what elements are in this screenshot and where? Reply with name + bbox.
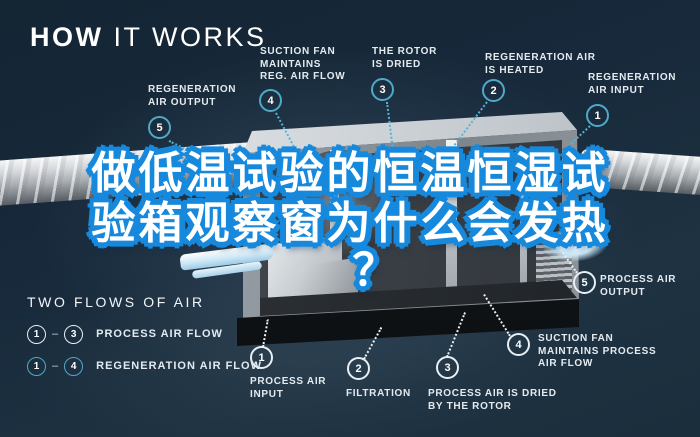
legend-label-process: PROCESS AIR FLOW bbox=[96, 328, 223, 340]
legend-circle: 1 bbox=[27, 325, 46, 344]
legend-circle-number: 4 bbox=[71, 361, 77, 372]
legend-label-regeneration: REGENERATION AIR FLOW bbox=[96, 360, 262, 372]
legend-circle-number: 1 bbox=[34, 361, 40, 372]
headline-line-1: 做低温试验的恒温恒湿试 bbox=[0, 149, 700, 199]
headline-question-mark: ？ bbox=[26, 249, 700, 293]
legend-heading: TWO FLOWS OF AIR bbox=[27, 294, 262, 310]
badge-regeneration-3: 3 bbox=[371, 78, 394, 101]
label-filtration: FILTRATION bbox=[346, 388, 411, 401]
badge-number: 3 bbox=[379, 84, 385, 96]
label-regeneration-air-heated: REGENERATION AIR IS HEATED bbox=[485, 52, 596, 77]
chinese-headline-overlay: 做低温试验的恒温恒湿试 验箱观察窗为什么会发热 ？ bbox=[0, 149, 700, 293]
badge-regeneration-5: 5 bbox=[148, 116, 171, 139]
badge-process-2: 2 bbox=[347, 357, 370, 380]
badge-process-4: 4 bbox=[507, 333, 530, 356]
badge-number: 3 bbox=[444, 362, 450, 374]
badge-number: 4 bbox=[515, 339, 521, 351]
title-bold: HOW bbox=[30, 22, 103, 52]
badge-process-3: 3 bbox=[436, 356, 459, 379]
legend-circle-number: 1 bbox=[34, 329, 40, 340]
legend-row-regeneration: 1 – 4 REGENERATION AIR FLOW bbox=[27, 356, 262, 376]
badge-regeneration-1: 1 bbox=[586, 104, 609, 127]
legend-circle: 1 bbox=[27, 357, 46, 376]
legend-row-process: 1 – 3 PROCESS AIR FLOW bbox=[27, 324, 262, 344]
headline-line-2: 验箱观察窗为什么会发热 bbox=[0, 199, 700, 249]
badge-number: 5 bbox=[156, 122, 162, 134]
legend-circle: 3 bbox=[64, 325, 83, 344]
page-title: HOW IT WORKS bbox=[30, 22, 267, 53]
legend: TWO FLOWS OF AIR 1 – 3 PROCESS AIR FLOW … bbox=[27, 294, 262, 388]
legend-dash: – bbox=[52, 328, 58, 340]
badge-number: 1 bbox=[594, 110, 600, 122]
label-suction-fan-reg: SUCTION FAN MAINTAINS REG. AIR FLOW bbox=[260, 46, 345, 84]
infographic-canvas: HOW IT WORKS REGENERATION AIR OUTPUT 5 S… bbox=[0, 0, 700, 437]
label-rotor-is-dried: THE ROTOR IS DRIED bbox=[372, 46, 437, 71]
badge-number: 2 bbox=[490, 85, 496, 97]
badge-number: 2 bbox=[355, 363, 361, 375]
label-process-air-dried: PROCESS AIR IS DRIED BY THE ROTOR bbox=[428, 388, 557, 413]
badge-regeneration-4: 4 bbox=[259, 89, 282, 112]
legend-circle: 4 bbox=[64, 357, 83, 376]
badge-number: 4 bbox=[267, 95, 273, 107]
label-regeneration-air-output: REGENERATION AIR OUTPUT bbox=[148, 84, 236, 109]
title-light: IT WORKS bbox=[103, 22, 266, 52]
label-regeneration-air-input: REGENERATION AIR INPUT bbox=[588, 72, 676, 97]
legend-dash: – bbox=[52, 360, 58, 372]
label-suction-fan-process: SUCTION FAN MAINTAINS PROCESS AIR FLOW bbox=[538, 333, 656, 371]
badge-regeneration-2: 2 bbox=[482, 79, 505, 102]
legend-circle-number: 3 bbox=[71, 329, 77, 340]
